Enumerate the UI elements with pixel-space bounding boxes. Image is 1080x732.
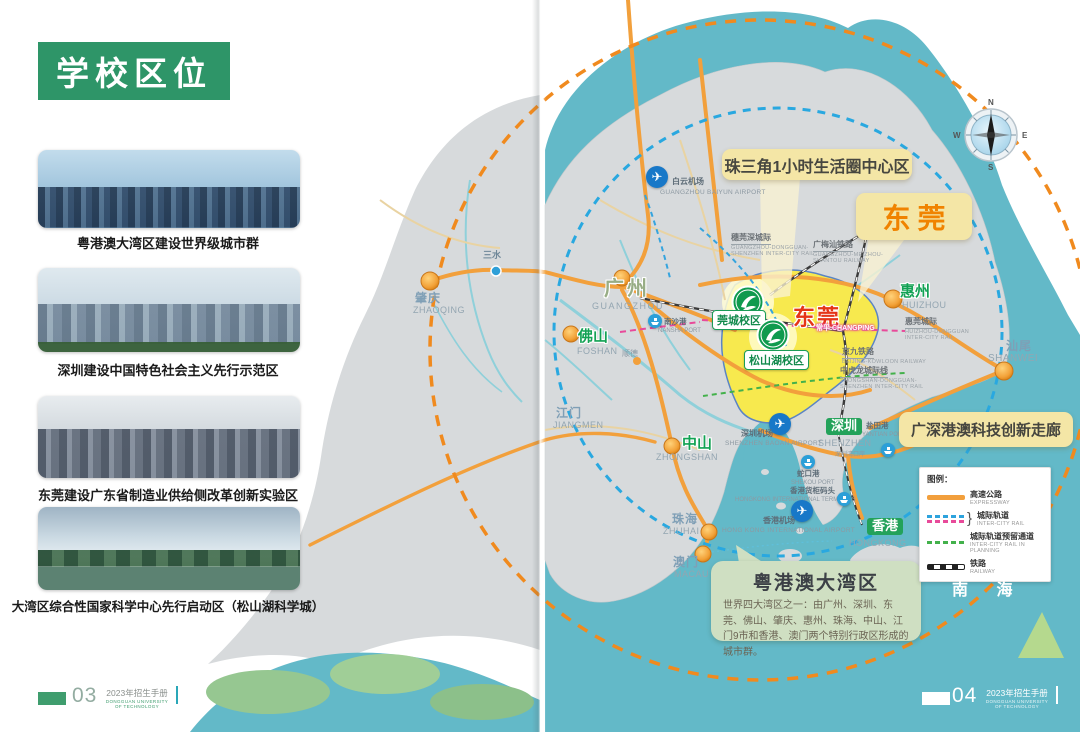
rail-label-zhonghulong: 中虎龙城际线 ZHONGSHAN-DONGGUAN- SHENZHEN INTE… xyxy=(840,365,924,390)
photo-caption: 东莞建设广东省制造业供给侧改革创新实验区 xyxy=(10,485,326,504)
planned-rail-line-icon xyxy=(927,541,965,544)
city-label-guangzhou-en: GUANGZHOU xyxy=(592,301,664,311)
map-legend: 图例： 高速公路 EXPRESSWAY } 城际轨道 INTER-CITY RA… xyxy=(919,467,1051,582)
photo-bay-area-skyline xyxy=(38,150,300,228)
legend-title: 图例： xyxy=(927,473,1043,485)
city-label-foshan: 佛山 xyxy=(578,328,608,345)
rail-label-guangmeishan: 广梅汕铁路 GUANGZHOU-MEIZHOU- SHANTOU RAILWAY xyxy=(813,239,883,264)
rail-cn: 惠莞城际 xyxy=(905,316,937,329)
city-label-guangzhou: 广州 xyxy=(604,278,650,301)
callout-corridor-text: 广深港澳科技创新走廊 xyxy=(911,419,1061,440)
callout-dongguan-text: 东莞 xyxy=(882,197,952,237)
rail-cn: 京九铁路 xyxy=(842,346,874,359)
compass-s: S xyxy=(988,163,993,172)
city-label-huizhou-en: HUIZHOU xyxy=(902,300,947,310)
rail-cn: 广梅汕铁路 xyxy=(813,239,853,252)
city-label-shenzhen: 深圳 xyxy=(826,418,862,435)
airplane-glyph: ✈ xyxy=(775,416,786,432)
airplane-glyph: ✈ xyxy=(652,169,663,185)
city-label-foshan-en: FOSHAN xyxy=(577,346,618,356)
city-label-shenzhen-en: SHENZHEN xyxy=(818,438,872,448)
port-nansha-cn: 南沙港 xyxy=(664,318,687,327)
sea-label: 南 海 xyxy=(952,582,1024,600)
photo-songshan-lake xyxy=(38,507,300,590)
airport-baoan-en: SHENZHEN BAOAN AIRPORT xyxy=(725,440,822,447)
city-label-sanshui: 三水 xyxy=(483,250,501,260)
compass-w: W xyxy=(953,131,961,140)
port-hk-terminals-cn: 香港货柜码头 xyxy=(790,487,835,496)
campus-logo-songshanhu xyxy=(756,318,790,352)
legend-en: EXPRESSWAY xyxy=(970,500,1010,506)
rail-en: SHENZHEN INTER-CITY RAIL xyxy=(840,384,924,390)
city-label-hongkong-en: HONGKONG xyxy=(849,538,907,548)
legend-item-expressway: 高速公路 EXPRESSWAY xyxy=(927,489,1043,506)
city-label-jiangmen: 江门 xyxy=(556,407,582,421)
callout-corridor: 广深港澳科技创新走廊 xyxy=(899,412,1073,447)
callout-life-circle: 珠三角1小时生活圈中心区 xyxy=(722,149,912,180)
city-label-hongkong: 香港 xyxy=(867,518,903,535)
legend-brace: } xyxy=(967,511,972,526)
legend-cn: 城际轨道 xyxy=(977,510,1025,521)
compass-e: E xyxy=(1022,131,1027,140)
airport-baiyun-en: GUANGZHOU BAIYUN AIRPORT xyxy=(660,189,766,196)
callout-bay-area-body: 世界四大湾区之一：由广州、深圳、东莞、佛山、肇庆、惠州、珠海、中山、江门9市和香… xyxy=(711,595,921,660)
rail-en: SHENZHEN INTER-CITY RAIL xyxy=(731,251,815,257)
rail-label-jingjiu: 京九铁路 BEIJING-KOWLOON RAILWAY xyxy=(842,346,926,365)
legend-item-intercity: } 城际轨道 INTER-CITY RAIL xyxy=(927,510,1043,527)
callout-life-circle-text: 珠三角1小时生活圈中心区 xyxy=(725,153,910,177)
ship-icon xyxy=(648,314,662,328)
port-shekou-cn: 蛇口港 xyxy=(797,470,820,479)
page-gutter xyxy=(532,0,546,732)
booklet-title-en: DONGGUAN UNIVERSITY OF TECHNOLOGY xyxy=(102,699,172,709)
city-label-zhuhai: 珠海 xyxy=(672,513,698,527)
airport-hk-cn: 香港机场 xyxy=(763,516,795,525)
city-label-huizhou: 惠州 xyxy=(900,283,930,300)
city-label-zhongshan: 中山 xyxy=(682,435,712,452)
station-cn: 常平 xyxy=(816,325,830,332)
callout-dongguan: 东莞 xyxy=(856,193,972,240)
airport-baoan-cn: 深圳机场 xyxy=(741,429,773,438)
city-label-zhongshan-en: ZHONGSHAN xyxy=(656,452,718,462)
legend-en: INTER-CITY RAIL xyxy=(977,521,1025,527)
legend-cn: 高速公路 xyxy=(970,489,1010,500)
city-label-zhaoqing: 肇庆 xyxy=(415,292,441,306)
ship-icon xyxy=(801,455,815,469)
city-label-jiangmen-en: JIANGMEN xyxy=(553,420,604,430)
expressway-line-icon xyxy=(927,495,965,500)
booklet-title-right: 2023年招生手册 DONGGUAN UNIVERSITY OF TECHNOL… xyxy=(982,687,1052,709)
photo-caption: 大湾区综合性国家科学中心先行启动区（松山湖科学城） xyxy=(10,596,326,615)
city-label-shanwei-en: SHANWEI xyxy=(988,353,1038,365)
booklet-title-cn: 2023年招生手册 xyxy=(982,687,1052,699)
callout-bay-area: 粤港澳大湾区 世界四大湾区之一：由广州、深圳、东莞、佛山、肇庆、惠州、珠海、中山… xyxy=(711,561,921,641)
city-label-shunde: 顺德 xyxy=(622,349,638,358)
rail-en: INTER-CITY RAIL xyxy=(905,335,969,341)
city-label-zhaoqing-en: ZHAOQING xyxy=(413,305,465,315)
footer-divider xyxy=(1056,686,1058,704)
section-title: 学校区位 xyxy=(38,42,230,100)
legend-cn: 铁路 xyxy=(970,558,995,569)
page-number-left: 03 xyxy=(72,684,97,708)
station-label-changping: 常平 CHANGPING xyxy=(816,325,875,333)
city-label-zhuhai-en: ZHUHAI xyxy=(663,526,700,536)
footer-accent-rect xyxy=(922,692,950,705)
footer-divider xyxy=(176,686,178,704)
intercity-blue-line-icon xyxy=(927,515,965,518)
photo-caption: 粤港澳大湾区建设世界级城市群 xyxy=(10,233,326,252)
legend-item-railway: 铁路 RAILWAY xyxy=(927,558,1043,575)
airport-baiyun-cn: 白云机场 xyxy=(672,177,704,186)
rail-cn: 穗莞深城际 xyxy=(731,232,771,245)
city-label-macau: 澳门 xyxy=(673,556,699,570)
legend-item-planning: 城际轨道预留通道 INTER-CITY RAIL IN PLANNING xyxy=(927,531,1043,554)
legend-en: INTER-CITY RAIL IN PLANNING xyxy=(970,542,1043,554)
checkpoint-shenzhen-bay: 深圳湾口岸 xyxy=(835,452,865,459)
railway-line-icon xyxy=(927,564,965,570)
ship-icon xyxy=(881,443,895,457)
booklet-title-left: 2023年招生手册 DONGGUAN UNIVERSITY OF TECHNOL… xyxy=(102,687,172,709)
city-label-macau-en: MACAU xyxy=(674,569,709,579)
compass-icon xyxy=(962,106,1020,164)
rail-label-huiwan: 惠莞城际 HUIZHOU-DONGGUAN INTER-CITY RAIL xyxy=(905,316,969,341)
page-number-right: 04 xyxy=(952,684,977,708)
callout-bay-area-title: 粤港澳大湾区 xyxy=(711,568,921,595)
compass-n: N xyxy=(988,98,994,107)
legend-cn: 城际轨道预留通道 xyxy=(970,531,1043,542)
airplane-icon: ✈ xyxy=(646,166,668,188)
airplane-glyph: ✈ xyxy=(797,503,808,519)
campus-label-songshanhu: 松山湖校区 xyxy=(744,350,809,370)
intercity-magenta-line-icon xyxy=(927,520,965,523)
rail-cn: 中虎龙城际线 xyxy=(840,365,888,378)
brochure-spread: 学校区位 粤港澳大湾区建设世界级城市群 深圳建设中国特色社会主义先行示范区 东莞… xyxy=(0,0,1080,732)
section-title-text: 学校区位 xyxy=(56,47,212,95)
rail-en: SHANTOU RAILWAY xyxy=(813,258,883,264)
booklet-title-cn: 2023年招生手册 xyxy=(102,687,172,699)
ship-icon xyxy=(837,492,851,506)
photo-caption: 深圳建设中国特色社会主义先行示范区 xyxy=(10,360,326,379)
port-nansha-en: NANSHA PORT xyxy=(658,328,701,335)
city-label-shanwei: 汕尾 xyxy=(1006,340,1032,354)
booklet-title-en: DONGGUAN UNIVERSITY OF TECHNOLOGY xyxy=(982,699,1052,709)
photo-dongguan-city xyxy=(38,396,300,478)
legend-en: RAILWAY xyxy=(970,569,995,575)
station-en: CHANGPING xyxy=(832,325,875,332)
airport-hk-en: HONG KONG INTERNATIONAL AIRPORT xyxy=(722,527,855,534)
rail-label-suiwanshen: 穗莞深城际 GUANGZHOU-DONGGUAN- SHENZHEN INTER… xyxy=(731,232,815,257)
photo-shenzhen-skyline xyxy=(38,268,300,352)
footer-accent-rect xyxy=(38,692,66,705)
compass-rose: N E S W xyxy=(962,106,1020,164)
port-yantian-cn: 盐田港 xyxy=(866,422,889,431)
